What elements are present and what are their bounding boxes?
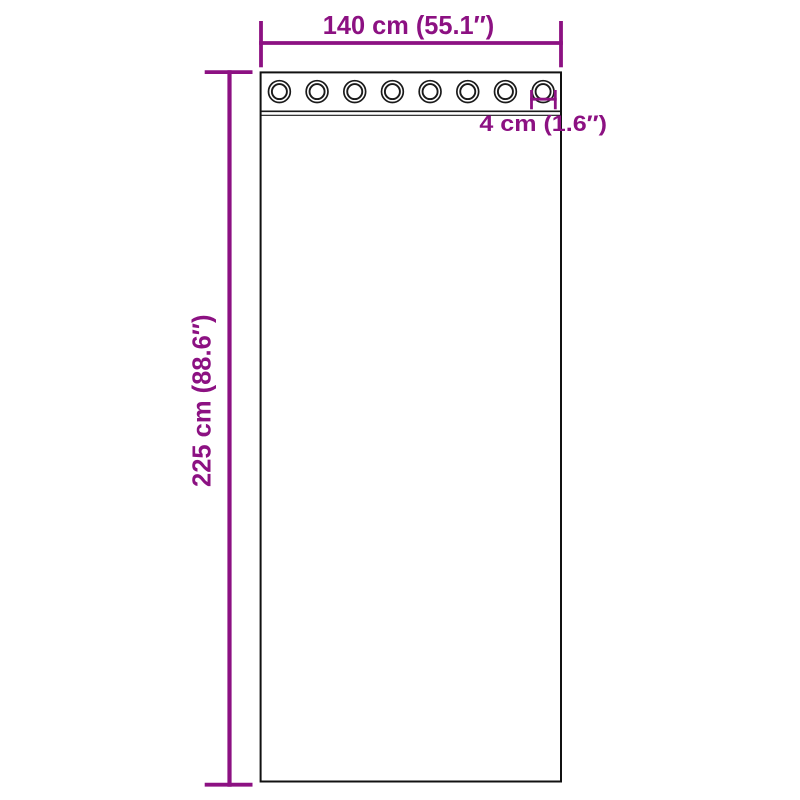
svg-text:225 cm (88.6″): 225 cm (88.6″) <box>187 315 217 488</box>
svg-text:140 cm (55.1″): 140 cm (55.1″) <box>323 10 495 40</box>
svg-text:4 cm (1.6″): 4 cm (1.6″) <box>479 111 607 136</box>
